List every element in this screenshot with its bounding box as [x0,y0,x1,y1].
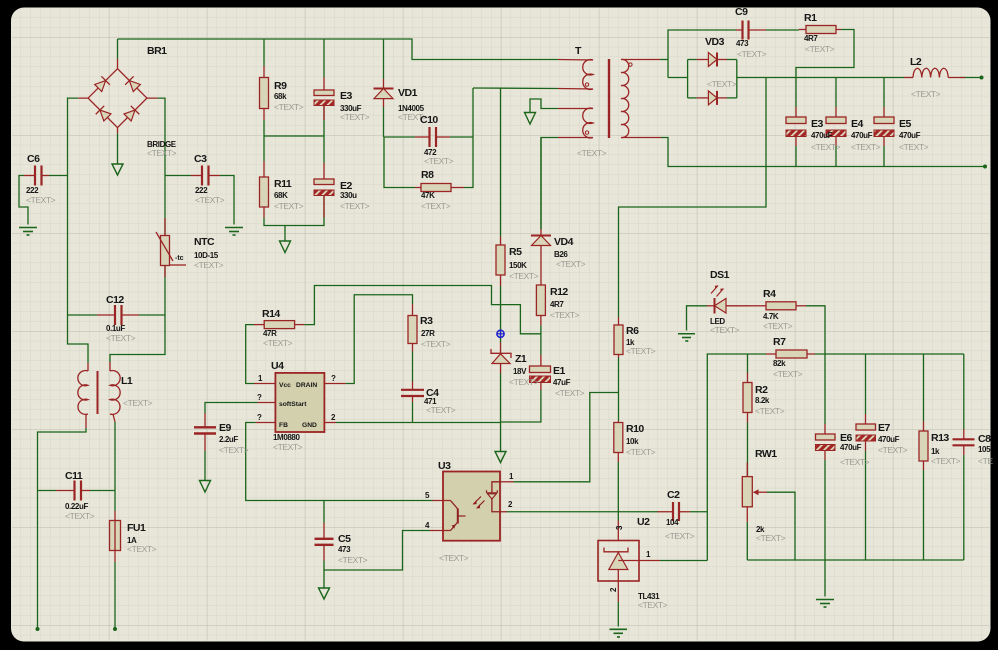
svg-text:Vcc: Vcc [279,382,291,389]
svg-text:<TEXT>: <TEXT> [273,442,303,452]
svg-text:R4: R4 [763,288,776,300]
svg-text:1: 1 [258,374,263,383]
svg-text:<TEXT>: <TEXT> [710,325,740,335]
svg-text:<TEXT>: <TEXT> [707,79,737,89]
svg-text:<TEXT>: <TEXT> [665,531,695,541]
svg-text:222: 222 [195,186,208,195]
svg-text:0.22uF: 0.22uF [65,502,88,511]
svg-text:R7: R7 [773,336,786,348]
svg-text:4: 4 [425,521,430,530]
svg-text:<TEXT>: <TEXT> [147,148,177,158]
svg-text:1: 1 [646,550,651,559]
svg-text:RW1: RW1 [755,448,777,460]
svg-text:B26: B26 [554,250,568,259]
svg-text:1: 1 [509,472,514,481]
svg-text:R6: R6 [626,325,639,337]
svg-text:U3: U3 [438,460,451,472]
svg-text:Z1: Z1 [515,353,527,365]
svg-text:4.7K: 4.7K [763,312,779,321]
svg-text:R5: R5 [509,246,522,258]
svg-text:R11: R11 [274,178,292,190]
svg-text:5: 5 [425,491,430,500]
svg-text:<TEXT>: <TEXT> [26,195,56,205]
svg-text:C10: C10 [420,114,438,126]
svg-text:<TEXT>: <TEXT> [626,447,656,457]
svg-text:222: 222 [26,186,39,195]
svg-text:473: 473 [736,39,749,48]
svg-text:82k: 82k [773,359,786,368]
svg-text:C11: C11 [65,470,83,482]
svg-text:<TEXT>: <TEXT> [773,369,803,379]
svg-text:<TEXT>: <TEXT> [421,339,451,349]
svg-text:DS1: DS1 [710,269,730,281]
svg-text:<TEXT>: <TEXT> [274,102,304,112]
svg-text:R3: R3 [420,315,433,327]
svg-text:<TEXT>: <TEXT> [195,195,225,205]
svg-text:GND: GND [302,422,317,429]
svg-text:10D-15: 10D-15 [194,251,219,260]
svg-text:<TEXT>: <TEXT> [911,89,941,99]
svg-text:<TEXT>: <TEXT> [509,377,539,387]
svg-text:R12: R12 [550,286,568,298]
svg-text:C2: C2 [667,489,680,501]
svg-text:U4: U4 [271,360,284,372]
svg-text:L1: L1 [121,375,133,387]
svg-text:470uF: 470uF [851,131,873,140]
svg-text:<TEXT>: <TEXT> [106,333,136,343]
svg-text:C12: C12 [106,294,124,306]
svg-text:<TEXT>: <TEXT> [509,271,539,281]
svg-text:softStart: softStart [279,401,307,408]
svg-text:VD1: VD1 [398,87,418,99]
svg-text:<TEXT>: <TEXT> [577,148,607,158]
svg-text:BR1: BR1 [147,45,167,57]
svg-text:1M0880: 1M0880 [273,433,300,442]
svg-text:E9: E9 [219,422,232,434]
svg-text:U2: U2 [637,516,650,528]
svg-text:VD3: VD3 [705,36,725,48]
svg-text:<TE: <TE [978,456,993,466]
svg-text:<TEXT>: <TEXT> [756,533,786,543]
svg-text:E7: E7 [878,422,891,434]
svg-text:47uF: 47uF [553,378,571,387]
svg-text:104: 104 [666,518,679,527]
svg-text:R10: R10 [626,423,644,435]
svg-text:2: 2 [508,500,513,509]
svg-text:<TEXT>: <TEXT> [755,406,785,416]
svg-text:470uF: 470uF [811,131,833,140]
svg-text:<TEXT>: <TEXT> [338,555,368,565]
svg-text:<TEXT>: <TEXT> [274,201,304,211]
svg-text:<TEXT>: <TEXT> [219,445,249,455]
svg-text:105: 105 [978,445,991,454]
svg-text:2.2uF: 2.2uF [219,435,238,444]
svg-text:<TEXT>: <TEXT> [424,156,454,166]
svg-text:<TEXT>: <TEXT> [556,259,586,269]
svg-text:<TEXT>: <TEXT> [123,398,153,408]
svg-text:18V: 18V [513,367,527,376]
svg-text:68K: 68K [274,191,288,200]
svg-text:E3: E3 [811,118,824,130]
svg-text:<TEXT>: <TEXT> [194,260,224,270]
svg-text:R9: R9 [274,80,287,92]
svg-text:R14: R14 [262,308,280,320]
svg-text:<TEXT>: <TEXT> [555,388,585,398]
svg-text:R2: R2 [755,384,768,396]
svg-text:<TEXT>: <TEXT> [263,338,293,348]
svg-text:<TEXT>: <TEXT> [65,511,95,521]
svg-text:C5: C5 [338,533,351,545]
svg-text:<TEXT>: <TEXT> [840,457,870,467]
svg-text:<TEXT>: <TEXT> [851,142,881,152]
svg-text:FU1: FU1 [127,522,146,534]
svg-text:R13: R13 [931,432,949,444]
svg-text:VD4: VD4 [554,236,574,248]
svg-text:E3: E3 [340,90,353,102]
svg-text:<TEXT>: <TEXT> [421,201,451,211]
svg-text:47R: 47R [263,329,277,338]
svg-text:<TEXT>: <TEXT> [899,142,929,152]
svg-text:1k: 1k [931,447,940,456]
svg-text:<TEXT>: <TEXT> [626,346,656,356]
svg-text:4R7: 4R7 [804,34,818,43]
svg-text:<TEXT>: <TEXT> [127,544,157,554]
svg-text:<TEXT>: <TEXT> [763,321,793,331]
svg-text:C3: C3 [194,153,207,165]
svg-text:8.2k: 8.2k [755,396,770,405]
svg-text:0.1uF: 0.1uF [106,324,125,333]
svg-text:?: ? [331,374,336,383]
svg-text:R1: R1 [804,12,817,24]
svg-text:<TEXT>: <TEXT> [931,456,961,466]
svg-text:330u: 330u [340,191,357,200]
svg-text:<TEXT>: <TEXT> [878,445,908,455]
svg-text:NTC: NTC [194,236,215,248]
svg-text:FB: FB [279,422,288,429]
svg-text:L2: L2 [910,56,922,68]
svg-text:E5: E5 [899,118,912,130]
svg-text:<TEXT>: <TEXT> [439,553,469,563]
svg-text:E1: E1 [553,365,566,377]
svg-text:4R7: 4R7 [550,300,564,309]
svg-text:<TEXT>: <TEXT> [550,310,580,320]
svg-text:47K: 47K [421,191,435,200]
svg-text:<TEXT>: <TEXT> [340,112,370,122]
svg-text:10k: 10k [626,437,639,446]
svg-text:DRAIN: DRAIN [296,382,317,389]
svg-text:68k: 68k [274,92,287,101]
svg-text:R8: R8 [421,169,434,181]
svg-text:<TEXT>: <TEXT> [340,201,370,211]
svg-text:C9: C9 [735,6,748,18]
svg-text:C6: C6 [27,153,40,165]
svg-text:470uF: 470uF [899,131,921,140]
svg-text:-tc: -tc [175,255,184,262]
svg-text:?: ? [257,413,262,422]
svg-text:<TEXT>: <TEXT> [737,49,767,59]
svg-text:3: 3 [615,525,624,530]
svg-text:<TEXT>: <TEXT> [811,142,841,152]
svg-text:470uF: 470uF [840,443,862,452]
svg-text:470uF: 470uF [878,435,900,444]
svg-text:?: ? [257,393,262,402]
svg-text:<TEXT>: <TEXT> [805,44,835,54]
svg-text:E4: E4 [851,118,864,130]
svg-text:<TEXT>: <TEXT> [638,600,668,610]
svg-text:<TEXT>: <TEXT> [426,405,456,415]
svg-text:2: 2 [331,413,336,422]
svg-text:C8: C8 [978,433,991,445]
svg-text:473: 473 [338,545,351,554]
svg-text:2: 2 [609,587,618,592]
svg-text:150K: 150K [509,261,527,270]
svg-text:27R: 27R [421,329,435,338]
